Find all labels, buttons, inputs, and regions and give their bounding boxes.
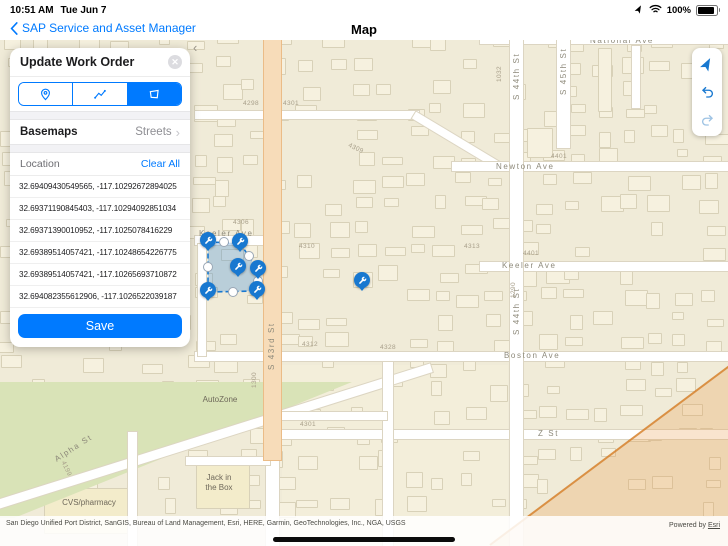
geometry-tool-segmented-control [18, 82, 182, 106]
coordinate-row: 32.69389514057421, -117.10265693710872 [10, 264, 190, 286]
work-order-marker[interactable] [200, 232, 216, 248]
coordinate-row: 32.69371190845403, -117.10294092851034 [10, 198, 190, 220]
save-button[interactable]: Save [18, 314, 182, 338]
battery-icon [696, 5, 718, 16]
panel-title: Update Work Order [20, 55, 134, 69]
undo-button[interactable] [696, 82, 718, 102]
location-services-icon [634, 4, 644, 17]
point-tool-button[interactable] [19, 83, 72, 105]
page-title: Map [0, 22, 728, 37]
coordinate-row: 32.69409430549565, -117.10292672894025 [10, 176, 190, 198]
section-separator [10, 144, 190, 153]
locate-arrow-icon [699, 56, 715, 72]
polyline-tool-button[interactable] [72, 83, 126, 105]
status-time: 10:51 AM [10, 5, 54, 16]
nav-bar: SAP Service and Asset Manager Map [0, 20, 728, 40]
close-icon[interactable]: ✕ [168, 55, 182, 69]
wrench-icon [253, 285, 262, 294]
status-bar: 10:51 AM Tue Jun 7 100% [0, 0, 728, 20]
home-indicator[interactable] [273, 537, 455, 542]
battery-percent: 100% [667, 5, 691, 16]
attribution-sources: San Diego Unified Port District, SanGIS,… [6, 520, 406, 527]
redo-button[interactable] [696, 110, 718, 130]
work-order-marker[interactable] [200, 282, 216, 298]
powered-by-label: Powered by [669, 522, 706, 529]
locate-button[interactable] [696, 54, 718, 74]
undo-icon [700, 85, 715, 100]
work-order-marker[interactable] [354, 272, 370, 288]
work-order-marker[interactable] [250, 260, 266, 276]
coordinate-row: 32.694082355612906, -117.1026522039187 [10, 286, 190, 308]
work-order-marker[interactable] [230, 258, 246, 274]
wrench-icon [204, 236, 213, 245]
basemaps-value: Streets [135, 126, 171, 138]
redo-icon [700, 113, 715, 128]
chevron-right-icon: › [176, 126, 180, 139]
app-screen: 10:51 AM Tue Jun 7 100% SAP Service and … [0, 0, 728, 546]
wrench-icon [204, 286, 213, 295]
wrench-icon [254, 264, 263, 273]
coordinate-row: 32.69389514057421, -117.10248654226775 [10, 242, 190, 264]
esri-link[interactable]: Esri [708, 522, 720, 529]
polygon-tool-button[interactable] [127, 83, 181, 105]
status-date: Tue Jun 7 [61, 5, 107, 16]
coordinate-list: 32.69409430549565, -117.1029267289402532… [10, 176, 190, 308]
polygon-icon [147, 88, 161, 101]
work-order-marker[interactable] [249, 281, 265, 297]
wrench-icon [234, 262, 243, 271]
polyline-icon [93, 88, 107, 101]
update-work-order-panel: Update Work Order ✕ [10, 48, 190, 347]
map-tools [692, 48, 722, 136]
coordinate-row: 32.69371390010952, -117.1025078416229 [10, 220, 190, 242]
work-order-marker[interactable] [232, 233, 248, 249]
wrench-icon [236, 237, 245, 246]
basemaps-row[interactable]: Basemaps Streets › [10, 120, 190, 144]
location-label: Location [20, 158, 141, 170]
pin-icon [39, 88, 52, 101]
basemaps-label: Basemaps [20, 126, 135, 138]
wrench-icon [358, 276, 367, 285]
collapse-panel-chevron[interactable]: ‹ [193, 40, 197, 55]
section-separator [10, 111, 190, 120]
clear-all-button[interactable]: Clear All [141, 158, 180, 170]
wifi-icon [649, 4, 662, 17]
